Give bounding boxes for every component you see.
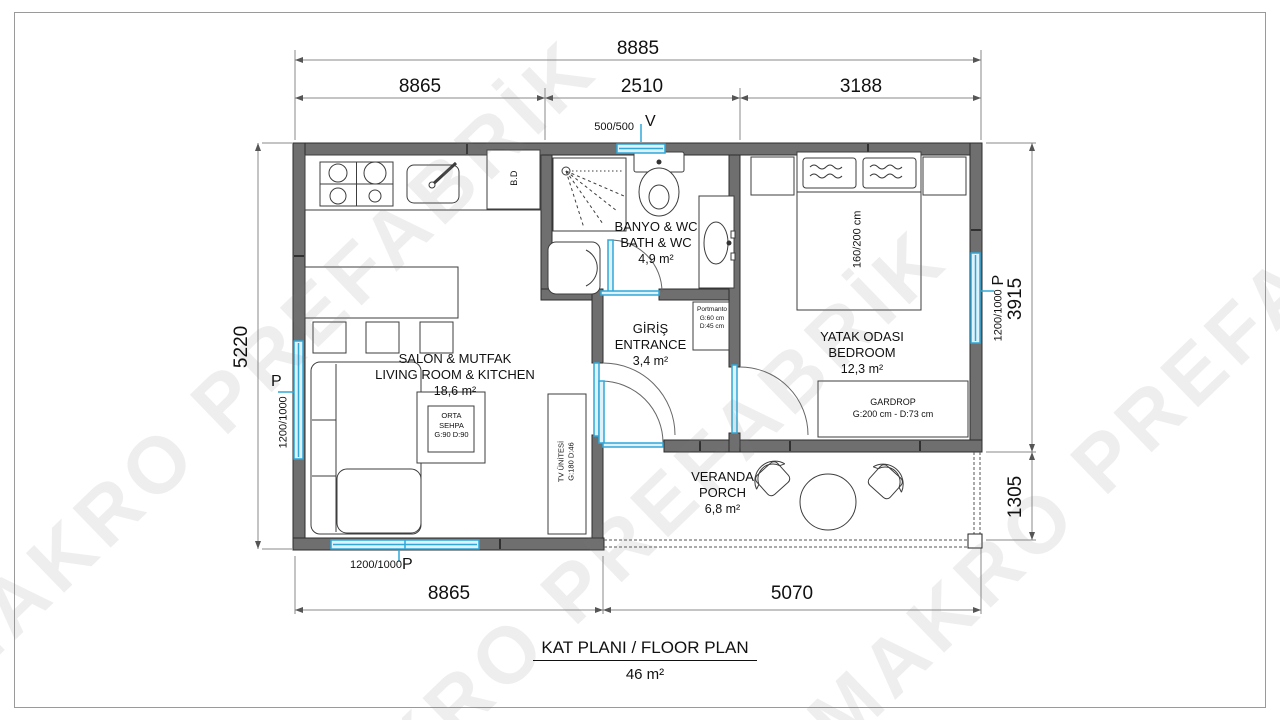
portmanto-label-line1: Portmanto [694, 306, 730, 315]
room-bedroom-name-tr: YATAK ODASI [787, 329, 937, 345]
dim-right-lower: 1305 [1005, 437, 1027, 557]
room-bath-name-en: BATH & WC [581, 235, 731, 251]
window-top-type-label: V [645, 113, 656, 131]
room-entrance-name-en: ENTRANCE [573, 337, 728, 353]
dim-top-left: 8865 [370, 76, 470, 98]
room-living-name-tr: SALON & MUTFAK [330, 351, 580, 367]
veranda-corner-post [968, 534, 982, 548]
coffee-table-label-line1: ORTA [429, 411, 474, 421]
veranda-table [800, 474, 856, 530]
door-threshold-bathroom [601, 291, 659, 295]
portmanto-label-line3: D:45 cm [694, 323, 730, 332]
plan-title: KAT PLANI / FLOOR PLAN [485, 638, 805, 661]
room-veranda-name-en: PORCH [645, 485, 800, 501]
window-left-type-label: P [271, 373, 282, 391]
tv-unit-label: TV ÜNİTESİ G:180 D:46 [557, 402, 576, 522]
bed-size-label: 160/200 cm [852, 179, 865, 299]
coffee-table-label-line3: G:90 D:90 [429, 430, 474, 440]
room-bedroom-name-en: BEDROOM [787, 345, 937, 361]
dim-left-height: 5220 [231, 287, 253, 407]
gardrop-label-line2: G:200 cm - D:73 cm [820, 408, 966, 420]
stool [313, 322, 346, 353]
gardrop-label: GARDROP G:200 cm - D:73 cm [820, 396, 966, 420]
window-top-size-label: 500/500 [558, 121, 634, 134]
dim-top-right: 3188 [811, 76, 911, 98]
room-entrance-area: 3,4 m² [573, 353, 728, 369]
kitchen-sink [407, 163, 459, 203]
room-bedroom-area: 12,3 m² [787, 361, 937, 377]
door-threshold-front [603, 443, 663, 447]
coffee-table-label: ORTA SEHPA G:90 D:90 [429, 411, 474, 440]
nightstand [751, 157, 794, 195]
dim-top-total: 8885 [588, 38, 688, 60]
room-label-living: SALON & MUTFAK LIVING ROOM & KITCHEN 18,… [330, 351, 580, 399]
door-leaf-bedroom [732, 365, 737, 433]
room-label-veranda: VERANDA PORCH 6,8 m² [645, 469, 800, 517]
dim-right-upper: 3915 [1005, 239, 1027, 359]
portmanto-label-line2: G:60 cm [694, 315, 730, 324]
door-leaf-front [599, 381, 604, 443]
dim-top-middle: 2510 [592, 76, 692, 98]
room-bath-name-tr: BANYO & WC [581, 219, 731, 235]
plan-total-area: 46 m² [485, 666, 805, 683]
kitchen-island [305, 267, 458, 318]
room-bath-area: 4,9 m² [581, 251, 731, 267]
tv-unit-label-line1: TV ÜNİTESİ [557, 402, 567, 522]
room-label-bath: BANYO & WC BATH & WC 4,9 m² [581, 219, 731, 267]
room-veranda-area: 6,8 m² [645, 501, 800, 517]
coffee-table-label-line2: SEHPA [429, 421, 474, 431]
gardrop-label-line1: GARDROP [820, 396, 966, 408]
stove [320, 162, 393, 206]
room-label-bedroom: YATAK ODASI BEDROOM 12,3 m² [787, 329, 937, 377]
toilet [634, 152, 684, 216]
tv-unit-label-line2: G:180 D:46 [566, 402, 576, 522]
fridge-label: B.D [509, 148, 519, 208]
nightstand [923, 157, 966, 195]
portmanto-label: Portmanto G:60 cm D:45 cm [694, 306, 730, 332]
stool [366, 322, 399, 353]
room-living-area: 18,6 m² [330, 383, 580, 399]
dim-bottom-right: 5070 [742, 583, 842, 605]
floor-plan-page: MAKRO PREFABRİK MAKRO PREFABRİK MAKRO PR… [0, 0, 1280, 720]
window-right-type-label: P [990, 270, 1008, 290]
dim-bottom-left: 8865 [399, 583, 499, 605]
veranda-chair [863, 457, 911, 505]
room-living-name-en: LIVING ROOM & KITCHEN [330, 367, 580, 383]
window-bottom-type-label: P [402, 556, 413, 574]
stool [420, 322, 453, 353]
room-veranda-name-tr: VERANDA [645, 469, 800, 485]
plan-title-text: KAT PLANI / FLOOR PLAN [533, 638, 756, 661]
